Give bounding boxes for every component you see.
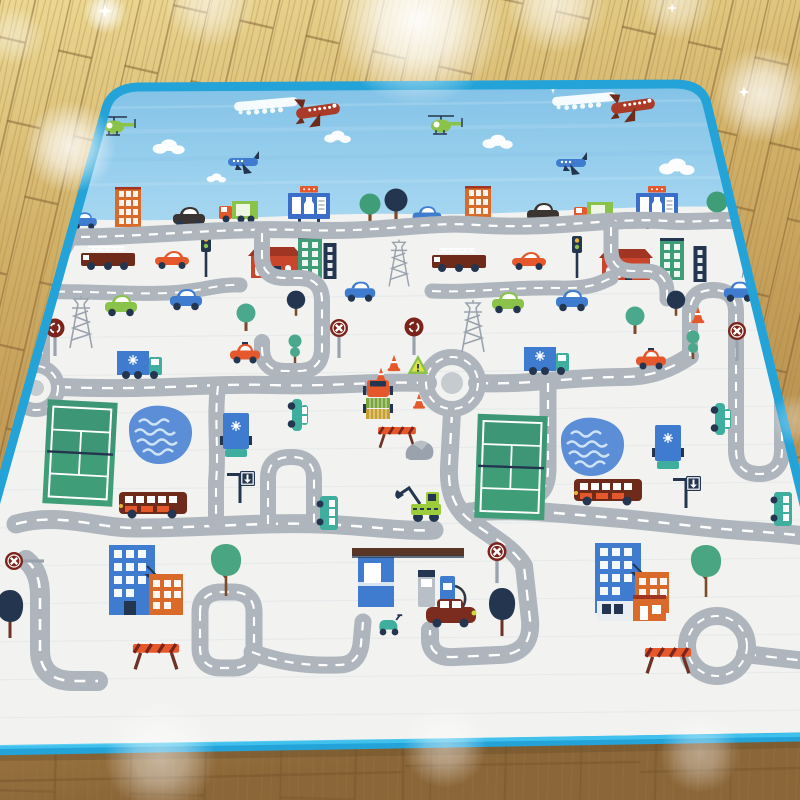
truck-orange-crates [363,380,393,419]
building-navy [324,243,337,279]
shops [597,595,666,621]
light-flare [403,704,487,788]
building-orange [115,187,141,227]
light-flare [660,713,740,793]
court [474,414,548,520]
light-flare [24,101,116,193]
building-navy [694,246,707,282]
play-mat [0,70,800,752]
court [42,399,117,507]
roundabout-island [441,372,463,394]
playmat-product-photo [0,0,800,800]
